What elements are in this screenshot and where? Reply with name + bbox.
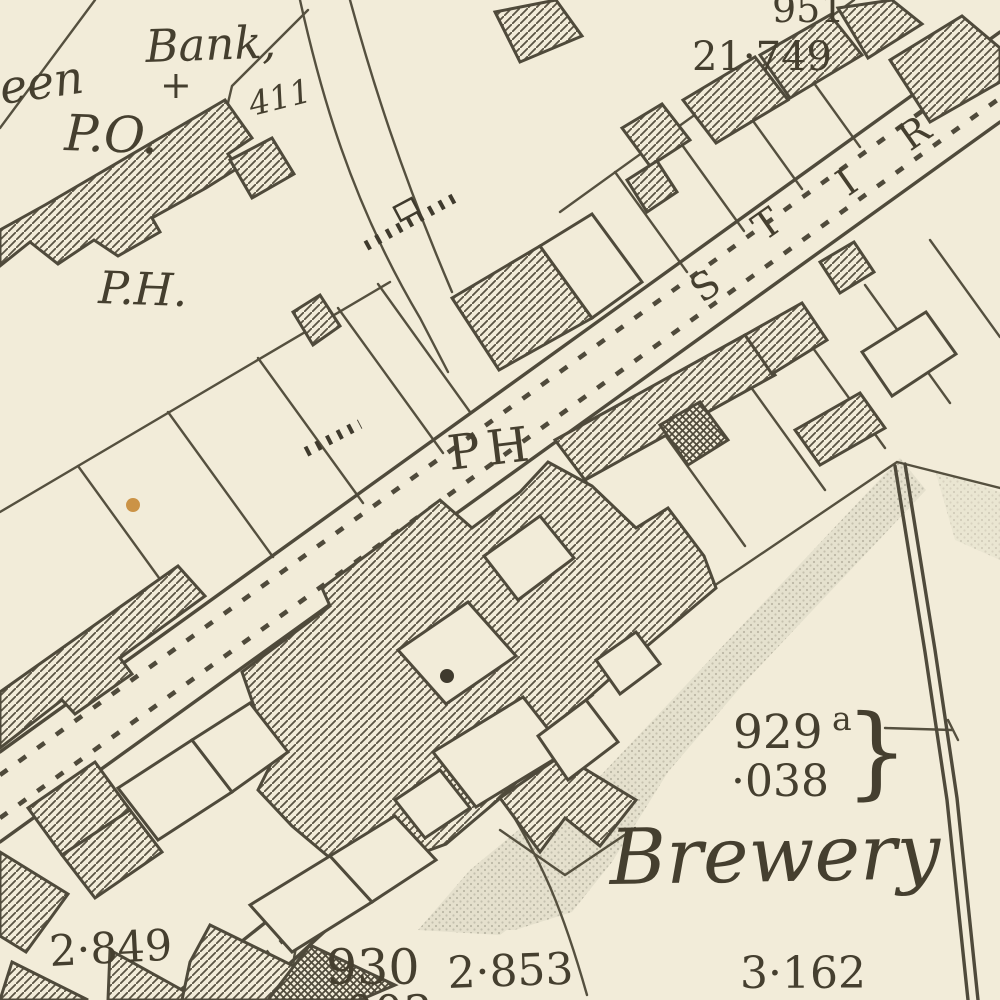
public-house-label-road: PH — [445, 416, 539, 482]
small-structure-mark — [440, 669, 454, 683]
public-house-label-nw: P.H. — [97, 261, 189, 317]
area-2-853: 2·853 — [447, 944, 575, 999]
plot-929a-number: 929 — [733, 705, 823, 760]
bank-cross-symbol: + — [160, 63, 192, 107]
area-2-849: 2·849 — [48, 921, 174, 977]
plot-930-area: ·003 — [330, 985, 432, 1000]
plot-929a-brace: } — [845, 693, 909, 810]
post-office-label: P.O. — [63, 104, 159, 165]
paper-stain-dot — [126, 498, 140, 512]
plot-929a-area: ·038 — [731, 756, 829, 807]
spot-level-21-749: 21·749 — [692, 34, 832, 80]
spot-level-951: 951 — [772, 0, 845, 31]
brewery-label: Brewery — [607, 808, 943, 903]
area-3-162: 3·162 — [740, 948, 866, 999]
historic-map-viewport: eenBank,+P.O.411P.H.95121·749STIRPH929a·… — [0, 0, 1000, 1000]
map-canvas: eenBank,+P.O.411P.H.95121·749STIRPH929a·… — [0, 0, 1000, 1000]
